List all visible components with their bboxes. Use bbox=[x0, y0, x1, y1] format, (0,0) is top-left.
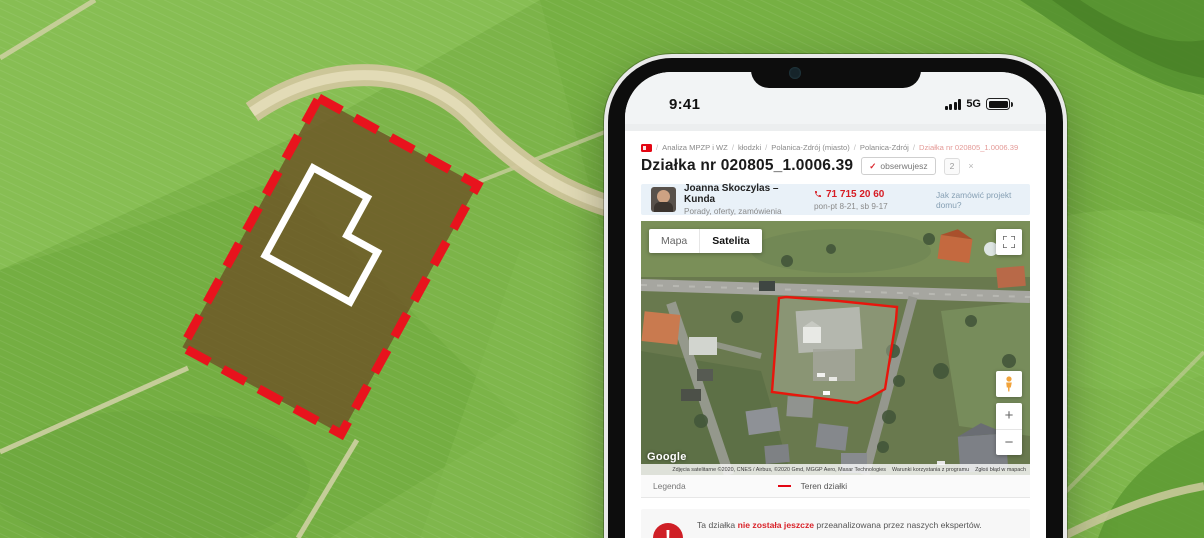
zoom-out-button[interactable]: − bbox=[996, 430, 1022, 456]
breadcrumb-separator: / bbox=[913, 143, 915, 152]
contact-card: Joanna Skoczylas – Kunda Porady, oferty,… bbox=[641, 184, 1030, 215]
street-view-pegman-button[interactable] bbox=[996, 371, 1022, 397]
fullscreen-button[interactable] bbox=[996, 229, 1022, 255]
battery-icon bbox=[986, 98, 1010, 110]
map-type-toggle: Mapa Satelita bbox=[649, 229, 762, 253]
breadcrumb-separator: / bbox=[732, 143, 734, 152]
zoom-controls: + − bbox=[996, 403, 1022, 455]
check-icon: ✓ bbox=[869, 161, 876, 172]
terms-link[interactable]: Warunki korzystania z programu bbox=[892, 467, 969, 473]
observe-label: obserwujesz bbox=[880, 161, 927, 171]
legend-parcel-label: Teren działki bbox=[801, 481, 848, 491]
breadcrumb-item-miejscowosc[interactable]: Polanica-Zdrój bbox=[860, 143, 909, 152]
phone-frame: 9:41 5G / Analiza MPZP i WZ / kłodzki bbox=[608, 58, 1063, 538]
breadcrumb-item-current: Działka nr 020805_1.0006.39 bbox=[919, 143, 1018, 152]
status-divider bbox=[625, 124, 1046, 131]
google-logo[interactable]: Google bbox=[647, 451, 687, 463]
screenshot-root: 9:41 5G / Analiza MPZP i WZ / kłodzki bbox=[0, 0, 1204, 538]
webpage: / Analiza MPZP i WZ / kłodzki / Polanica… bbox=[625, 131, 1046, 538]
title-row: Działka nr 020805_1.0006.39 ✓ obserwujes… bbox=[641, 157, 1030, 175]
phone-icon bbox=[814, 190, 822, 198]
map-container: Mapa Satelita bbox=[641, 221, 1030, 475]
fullscreen-icon bbox=[1003, 236, 1015, 248]
network-type-label: 5G bbox=[966, 98, 981, 110]
breadcrumb: / Analiza MPZP i WZ / kłodzki / Polanica… bbox=[641, 143, 1036, 152]
signal-strength-icon bbox=[945, 99, 962, 110]
breadcrumb-separator: / bbox=[656, 143, 658, 152]
tab-map[interactable]: Mapa bbox=[649, 229, 699, 253]
breadcrumb-separator: / bbox=[854, 143, 856, 152]
satellite-imagery[interactable] bbox=[641, 221, 1030, 475]
tab-satellite[interactable]: Satelita bbox=[699, 229, 761, 253]
breadcrumb-item-analiza[interactable]: Analiza MPZP i WZ bbox=[662, 143, 728, 152]
zoom-in-button[interactable]: + bbox=[996, 403, 1022, 430]
contact-tagline: Porady, oferty, zamówienia bbox=[684, 207, 806, 216]
phone-screen: 9:41 5G / Analiza MPZP i WZ / kłodzki bbox=[625, 72, 1046, 538]
brand-icon[interactable] bbox=[641, 144, 652, 152]
remove-observation-icon[interactable]: × bbox=[968, 161, 973, 171]
contact-phone[interactable]: 71 715 20 60 bbox=[826, 189, 884, 200]
status-time: 9:41 bbox=[669, 96, 700, 113]
legend-title: Legenda bbox=[653, 481, 686, 491]
avatar bbox=[651, 187, 676, 212]
warning-icon: ! bbox=[653, 523, 683, 538]
notice-line1: Ta działka nie została jeszcze przeanali… bbox=[697, 519, 1018, 532]
map-attribution: Zdjęcia satelitarne ©2020, CNES / Airbus… bbox=[641, 464, 1030, 475]
legend-bar: Legenda Teren działki bbox=[641, 475, 1030, 498]
observers-count-badge[interactable]: 2 bbox=[944, 158, 961, 175]
notice-highlight: nie została jeszcze bbox=[738, 520, 814, 530]
observe-button[interactable]: ✓ obserwujesz bbox=[861, 157, 935, 175]
breadcrumb-item-powiat[interactable]: kłodzki bbox=[738, 143, 761, 152]
contact-name: Joanna Skoczylas – Kunda bbox=[684, 183, 806, 205]
front-camera bbox=[789, 67, 801, 79]
pegman-icon bbox=[1003, 376, 1015, 392]
phone-notch bbox=[751, 58, 921, 88]
report-error-link[interactable]: Zgłoś błąd w mapach bbox=[975, 467, 1026, 473]
parcel-line-swatch bbox=[778, 485, 791, 488]
breadcrumb-item-gmina[interactable]: Polanica-Zdrój (miasto) bbox=[771, 143, 850, 152]
attribution-text: Zdjęcia satelitarne ©2020, CNES / Airbus… bbox=[672, 467, 886, 473]
order-project-link[interactable]: Jak zamówić projekt domu? bbox=[936, 190, 1020, 210]
analysis-notice: ! Ta działka nie została jeszcze przeana… bbox=[641, 509, 1030, 538]
contact-hours: pon-pt 8-21, sb 9-17 bbox=[814, 202, 936, 211]
breadcrumb-separator: / bbox=[765, 143, 767, 152]
page-title: Działka nr 020805_1.0006.39 bbox=[641, 157, 853, 175]
